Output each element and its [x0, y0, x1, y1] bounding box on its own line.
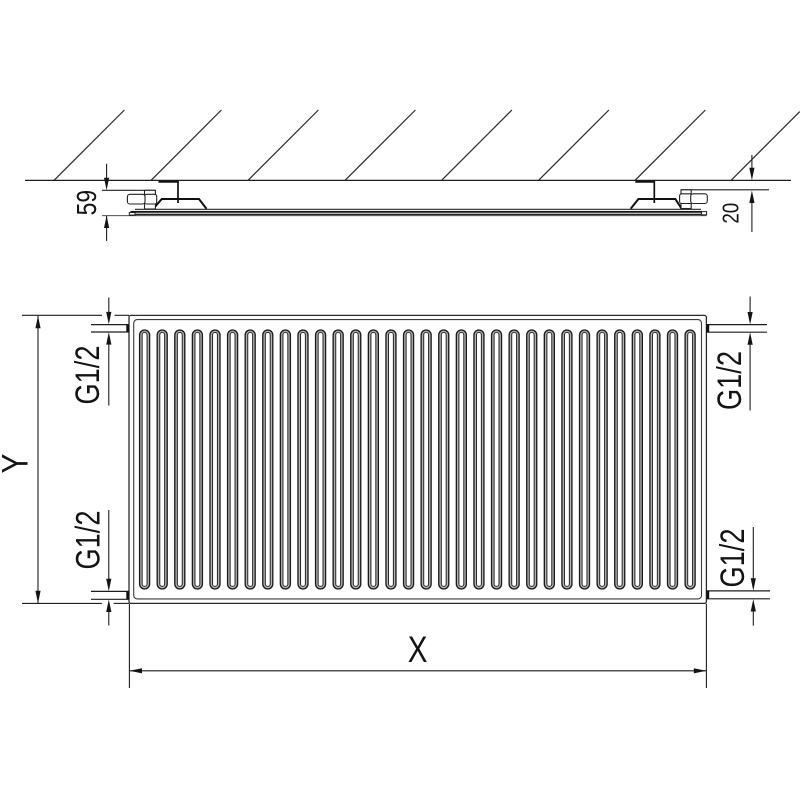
svg-text:Y: Y	[0, 454, 36, 474]
svg-text:X: X	[408, 630, 428, 671]
svg-text:G1/2: G1/2	[710, 351, 749, 410]
svg-text:G1/2: G1/2	[69, 511, 108, 570]
svg-text:G1/2: G1/2	[68, 346, 107, 405]
svg-text:59: 59	[72, 190, 103, 216]
svg-text:20: 20	[719, 203, 744, 224]
svg-text:G1/2: G1/2	[713, 529, 752, 588]
